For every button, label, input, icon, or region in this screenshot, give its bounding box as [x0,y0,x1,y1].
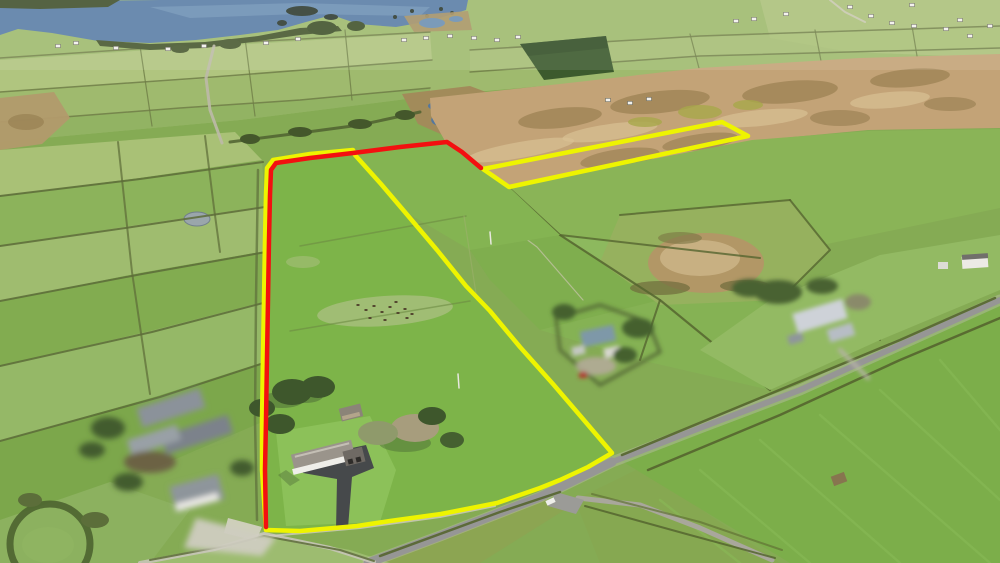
utility-pole [458,374,459,388]
cattle-herd-unit [381,311,384,313]
cattle-herd-unit [406,317,409,319]
cattle-herd-unit [404,308,407,310]
garden-tree [806,278,838,294]
treeline-clump [395,110,415,120]
conifer-tree [440,432,464,448]
farm-tree [113,473,143,491]
scene-layer [0,0,1000,563]
distant-houses-unit [647,97,652,100]
scrub-mound-pale [660,240,740,276]
cattle-herd-unit [357,304,360,306]
cattle-herd-unit [389,306,392,308]
treeline-clump [348,119,372,129]
cattle-herd-unit [395,301,398,303]
treeline-clump [240,134,260,144]
cattle-herd-unit [397,312,400,314]
scrub-clump [81,512,109,528]
aerial-photo-viewport [0,0,1000,563]
cattle-herd-unit [373,305,376,307]
cattle-herd-unit [384,319,387,321]
aerial-photo [0,0,1000,563]
bog-mottle [810,110,870,126]
cattle-herd-unit [369,317,372,319]
gorse-patch [628,117,662,127]
distant-houses-unit [628,101,633,104]
red-vehicle [579,372,587,378]
gorse-patch [733,100,763,110]
atmospheric-haze [0,0,1000,70]
distant-houses-unit [606,98,611,101]
white-outbuilding [938,262,948,269]
conifer-tree [418,407,446,425]
scrub-speck [658,232,702,244]
bare-tree [358,421,398,445]
worn-grass-patch [286,256,320,268]
farm-tree [230,460,254,476]
cattle-herd-unit [365,309,368,311]
scrub-mottle [8,114,44,130]
gorse-patch [678,105,722,119]
farm-tree [79,442,105,458]
garden-tree [845,294,871,310]
farm-tree [613,347,637,363]
utility-pole [490,232,491,244]
treeline-clump [288,127,312,137]
farm-tree [622,318,654,338]
scrub-clump [18,493,42,507]
ringfort-interior [22,527,74,563]
farm-tree [91,417,125,439]
cattle-herd-unit [411,313,414,315]
garden-tree [732,279,768,297]
farm-tree [552,304,576,320]
conifer-tree [301,376,335,398]
muck-yard [124,451,176,473]
conifer-tree [265,414,295,434]
scrub-speck [630,281,690,295]
bog-mottle [924,97,976,111]
